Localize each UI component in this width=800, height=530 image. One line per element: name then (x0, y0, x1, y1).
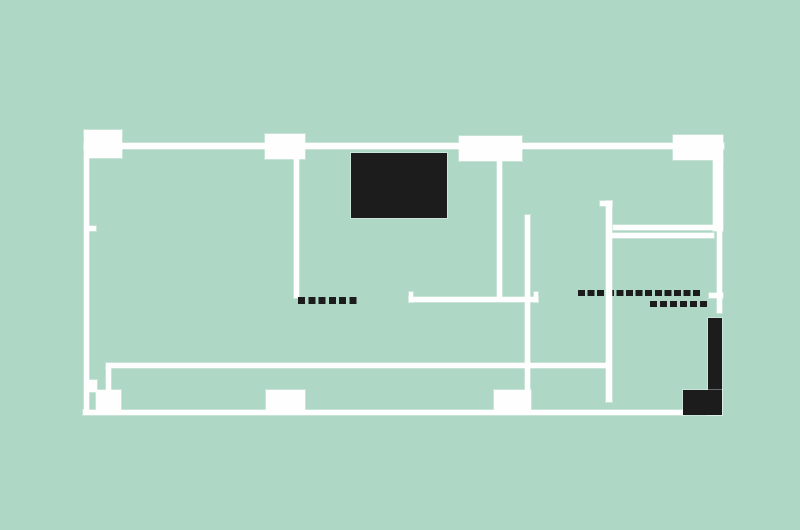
bracket-tick-left (409, 292, 413, 302)
interior-wall-b (497, 161, 502, 297)
column-bottom-1 (96, 390, 121, 412)
column-top-3 (459, 136, 522, 161)
inner-bottom-wall (106, 363, 611, 368)
floor-plan-canvas (0, 0, 800, 530)
right-wall-upper (713, 160, 723, 231)
right-wall-tick (709, 293, 723, 298)
dark-core-block (351, 153, 447, 218)
bracket-tick-right (534, 292, 538, 302)
bottom-wall (83, 410, 683, 415)
top-wall (84, 143, 724, 149)
left-wall-door-notch (88, 226, 96, 231)
counter-bracket (409, 297, 538, 302)
ledge-lower (611, 233, 714, 238)
dash-row-right-2 (650, 301, 707, 307)
dash-row-left (298, 297, 358, 304)
column-bottom-2 (266, 390, 305, 412)
dash-row-right-1 (578, 290, 702, 296)
column-top-4 (673, 135, 723, 160)
ledge-upper (613, 225, 714, 230)
inner-wall-connector (106, 368, 111, 392)
column-bottom-3 (494, 390, 531, 410)
right-wall-lower (717, 231, 722, 313)
column-top-2 (265, 134, 305, 159)
interior-line-d (606, 201, 612, 402)
dark-corner-foot (683, 390, 722, 415)
column-top-1 (84, 130, 122, 158)
interior-wall-a (294, 158, 299, 298)
left-wall (84, 158, 89, 411)
